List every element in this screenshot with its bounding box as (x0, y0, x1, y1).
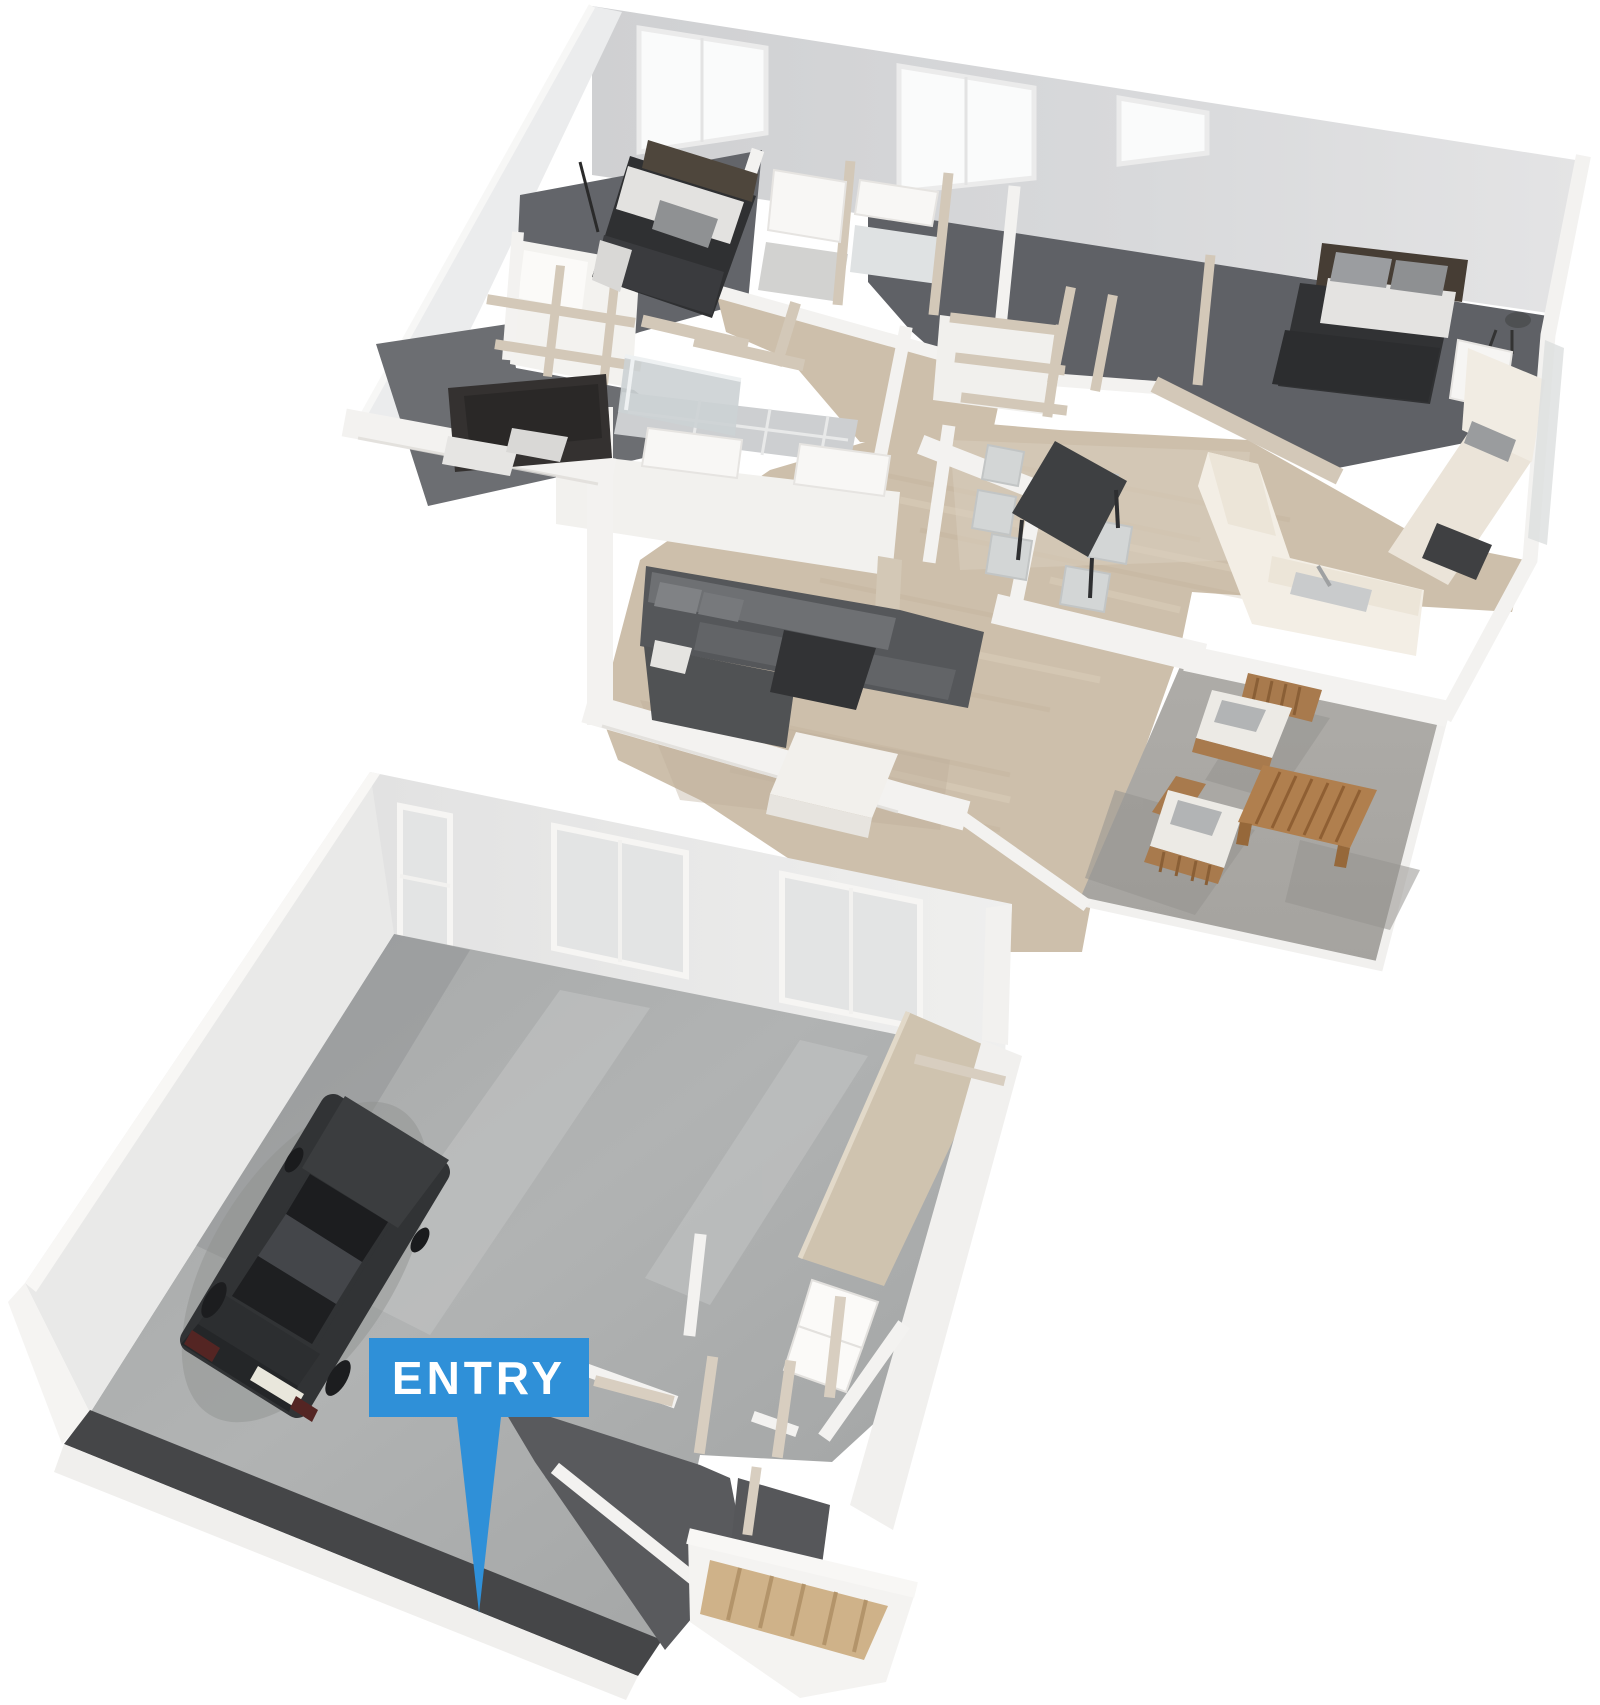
svg-text:ENTRY: ENTRY (392, 1352, 566, 1404)
